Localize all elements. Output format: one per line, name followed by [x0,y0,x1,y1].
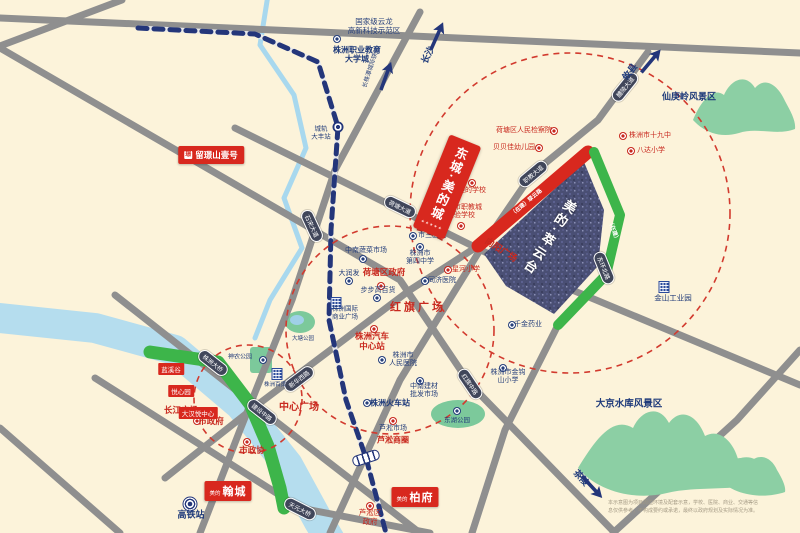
mountain-art [693,79,795,135]
intercity-rail [138,28,386,533]
intercity-rail-casing [138,28,386,533]
map-base-art [0,0,800,533]
map-canvas[interactable]: 石宋大道荷塘大道醴陵大道职教大道东环北路新华西路株洲大桥建设中路天元大桥红旗中路… [0,0,800,533]
donghu-park-area [431,400,485,428]
corner-road [0,428,120,533]
map-disclaimer: 本示意图为项目周边环境及配套示意，学校、医院、商业、交通等信息仅供参考，不构成要… [608,499,760,515]
pond-water [290,315,304,325]
